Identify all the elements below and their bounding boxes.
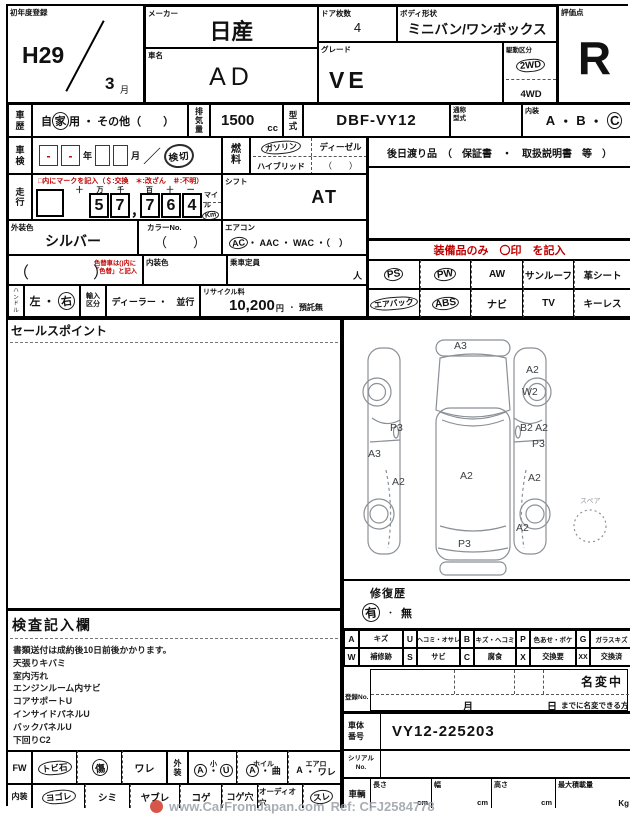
shaken-year-box2: - xyxy=(61,145,80,166)
watermark: www.CarFromJapan.com Ref: CFJ2584778 xyxy=(150,799,435,814)
serial-row: シリアルNo. xyxy=(342,750,630,778)
equip-tv: TV xyxy=(542,298,555,309)
ext-wheel-a: A xyxy=(245,763,259,777)
inspection-notes-title: 検査記入欄 xyxy=(12,615,92,635)
maker-value: 日産 xyxy=(209,14,253,46)
repaint-note-2: 「色替」と記入 xyxy=(93,268,137,276)
legend-w-desc: 補修跡 xyxy=(360,649,402,665)
note-line-4: エンジンルーム内サビ xyxy=(13,682,171,695)
equip-navi-cell: ナビ xyxy=(471,289,523,318)
cabin-dirt-cell: ヨゴレ xyxy=(32,784,85,808)
fw-crack-cell: ワレ xyxy=(122,750,167,784)
cabin-stain-cell: シミ xyxy=(85,784,130,808)
int-color-label: 内装色 xyxy=(146,257,169,268)
note-line-1: 書類送付は成約後10日前後かかります。 xyxy=(13,644,171,657)
shaken-expired-stamp: 検切 xyxy=(163,142,196,169)
equip-sunroof-cell: サンルーフ xyxy=(523,260,574,289)
equip-ps: PS xyxy=(384,267,405,282)
shaken-month-unit: 月 xyxy=(131,149,140,162)
reg-divider-2 xyxy=(514,670,515,694)
legend-p-key: P xyxy=(517,631,529,647)
fuel-options-cell: ガソリン ディーゼル ハイブリッド （ ） xyxy=(250,137,368,174)
damage-label-rf-fender: A2 xyxy=(526,364,539,376)
displacement-value: 1500 xyxy=(221,112,254,129)
ext-wheel-cell: ホイル A・曲 xyxy=(237,750,288,784)
ext-small-cell: 小 A・U xyxy=(188,750,237,784)
damage-label-left-rocker: A3 xyxy=(368,448,381,460)
cabin-label-cell: 内装 xyxy=(8,784,32,808)
legend-p-desc: 色あせ・ボケ xyxy=(531,631,575,647)
repair-history-sep: ・ xyxy=(386,606,395,619)
registration-note: までに名変できる方 xyxy=(561,700,628,711)
score-value: R xyxy=(578,31,611,85)
registration-pending: 名変中 xyxy=(581,673,623,690)
serial-label-border xyxy=(380,751,381,778)
equip-airbag-cell: エアバック xyxy=(368,289,420,318)
dim-height-label: 高さ xyxy=(494,780,508,790)
fuel-other-option: （ ） xyxy=(323,160,357,172)
note-line-7: バックパネルU xyxy=(13,721,171,734)
equip-pw: PW xyxy=(434,267,458,283)
damage-label-left-door: P3 xyxy=(390,422,403,434)
repair-history-no: 無 xyxy=(401,605,412,621)
grade-label: グレード xyxy=(321,44,351,55)
dim-width-unit: cm xyxy=(477,798,488,807)
interior-grade-cell: 内装 A ・ B ・ C xyxy=(522,104,630,137)
capacity-label: 乗車定員 xyxy=(230,257,260,268)
ext-small-dot: ・ xyxy=(209,764,218,777)
displacement-value-cell: 1500 cc xyxy=(210,104,283,137)
registration-label: 登録No. xyxy=(345,691,368,701)
auction-sheet: 初年度登録 H29 3 月 メーカー 日産 車名 AD ドア枚数 4 ボディ形状… xyxy=(6,4,628,806)
legend-xx-desc: 交換済 xyxy=(591,649,630,665)
displacement-label: 排気量 xyxy=(195,107,204,134)
import-label: 輸入区分 xyxy=(86,293,101,309)
cabin-label: 内装 xyxy=(12,791,28,802)
drive-type-cell: 駆動区分 2WD 4WD xyxy=(503,42,557,104)
equipment-note-cell: 装備品のみ 〇印 を記入 xyxy=(368,239,630,260)
chassis-label-border xyxy=(380,714,381,750)
later-goods-cell: 後日渡り品 （ 保証書 ・ 取扱説明書 等 ） xyxy=(368,137,630,167)
ext-small-a: A xyxy=(194,763,208,777)
dim-width-label: 幅 xyxy=(434,780,441,790)
doors-value: 4 xyxy=(354,20,361,35)
body-shape-value: ミニバン/ワンボックス xyxy=(407,18,546,38)
registration-box: 登録No. 名変中 月 日 までに名変できる方 xyxy=(342,665,630,712)
damage-label-right-door-p3: P3 xyxy=(532,438,545,450)
model-code-label-cell: 型式 xyxy=(283,104,303,137)
legend-s-desc: サビ xyxy=(418,649,459,665)
equip-leather-cell: 革シート xyxy=(574,260,630,289)
shift-value: AT xyxy=(311,187,338,208)
car-diagram xyxy=(344,320,630,580)
ext-aero-cell: エアロ A・ワレ xyxy=(288,750,342,784)
drive-2wd-option: 2WD xyxy=(516,58,546,73)
interior-grade-a: A xyxy=(546,113,555,128)
recycle-yen: 円 xyxy=(276,303,284,314)
legend-b-key: B xyxy=(461,631,473,647)
history-label: 車歴 xyxy=(15,110,25,131)
capacity-cell: 乗車定員 人 xyxy=(227,255,368,285)
body-shape-cell: ボディ形状 ミニバン/ワンボックス xyxy=(397,6,557,42)
fw-scratch-cell: 傷 xyxy=(77,750,122,784)
mileage-digit-5: 4 xyxy=(182,193,202,218)
legend-b-desc: キズ・ヘコミ xyxy=(475,631,515,647)
chassis-label: 車体番号 xyxy=(348,720,368,742)
history-circled: 家 xyxy=(51,111,70,131)
first-registration-cell: 初年度登録 H29 3 月 xyxy=(8,6,145,104)
note-line-2: 天張りキバミ xyxy=(13,657,171,670)
inspection-notes-box: 検査記入欄 書類送付は成約後10日前後かかります。 天張りキバミ 室内汚れ エン… xyxy=(8,609,342,750)
car-name-value: AD xyxy=(209,63,254,92)
interior-grade-b: B xyxy=(576,113,585,128)
drive-divider xyxy=(506,79,556,80)
chassis-value: VY12-225203 xyxy=(392,723,495,740)
fuel-label: 燃料 xyxy=(231,145,242,166)
mileage-digit-4: 6 xyxy=(161,193,181,218)
mileage-digit-2: 7 xyxy=(110,193,130,218)
mileage-unit-divider xyxy=(203,202,221,203)
reg-divider-1 xyxy=(454,670,455,694)
repair-history-label: 修復歴 xyxy=(370,585,406,601)
ext-aero-a: A xyxy=(296,765,303,778)
import-options: ディーラー ・ 並行 xyxy=(112,295,195,308)
equip-ps-cell: PS xyxy=(368,260,420,289)
maker-cell: メーカー 日産 xyxy=(145,6,318,48)
equip-leather: 革シート xyxy=(583,268,621,282)
equipment-note: 装備品のみ 〇印 を記入 xyxy=(434,242,566,258)
mileage-digit-1: 5 xyxy=(89,193,109,218)
first-registration-month: 3 xyxy=(105,74,114,94)
color-no-cell: カラーNo. （ ） xyxy=(138,220,222,255)
legend-g-desc: ガラスキズ xyxy=(591,631,630,647)
shaken-year-unit: 年 xyxy=(83,149,92,162)
recycle-status: 預託無 xyxy=(299,302,323,313)
shaken-label: 車検 xyxy=(15,145,25,166)
shift-cell: シフト AT xyxy=(222,174,368,220)
ext-aero-dot: ・ xyxy=(306,765,315,778)
handle-label-cell: ハンドル xyxy=(8,285,24,318)
drive-type-label: 駆動区分 xyxy=(506,44,532,54)
shaken-slash: ／ xyxy=(143,143,161,169)
drive-4wd-option: 4WD xyxy=(520,89,541,100)
dim-payload-label: 最大積載量 xyxy=(558,780,593,790)
damage-legend: A キズ U ヘコミ・オサレ B キズ・ヘコミ P 色あせ・ボケ G ガラスキズ… xyxy=(342,629,630,665)
handle-right-selected: 右 xyxy=(56,291,75,311)
legend-g-key: G xyxy=(577,631,589,647)
auction-sheet-page: { "header": { "first_reg": {"label":"初年度… xyxy=(0,0,640,819)
legend-x-desc: 交換要 xyxy=(531,649,575,665)
note-line-3: 室内汚れ xyxy=(13,670,171,683)
legend-xx-key: XX xyxy=(577,649,589,665)
inspection-notes-divider xyxy=(10,638,338,639)
equip-aw-cell: AW xyxy=(471,260,523,289)
equip-sunroof: サンルーフ xyxy=(525,268,572,282)
registration-month-unit: 月 xyxy=(463,698,473,712)
note-line-8: 下回りC2 xyxy=(13,734,171,747)
interior-grade-sep1: ・ xyxy=(559,111,572,130)
fw-label: FW xyxy=(13,763,27,773)
history-value-cell: 自家用 ・ その他（ ） xyxy=(32,104,188,137)
note-line-5: コアサポートU xyxy=(13,695,171,708)
mileage-check-box xyxy=(36,189,64,217)
ext-wheel-dot: ・ xyxy=(261,764,270,777)
shaken-month-box1 xyxy=(95,145,110,166)
sales-point-divider xyxy=(10,342,338,343)
later-goods-text: 後日渡り品 （ 保証書 ・ 取扱説明書 等 ） xyxy=(387,145,612,160)
fw-scratch: 傷 xyxy=(91,758,109,777)
ext-aero-crack: ワレ xyxy=(318,765,336,778)
carfromjapan-logo-icon xyxy=(150,800,163,813)
repair-history-box: 修復歴 有 ・ 無 xyxy=(342,580,630,629)
history-label-cell: 車歴 xyxy=(8,104,32,137)
displacement-label-cell: 排気量 xyxy=(188,104,210,137)
dim-width-cell: 幅 cm xyxy=(432,779,492,808)
recycle-cell: リサイクル料 10,200 円 ・ 預託無 xyxy=(200,285,368,318)
dimensions-label: 車輌 xyxy=(348,788,365,800)
equipment-freewrite-box xyxy=(368,167,630,239)
import-value-cell: ディーラー ・ 並行 xyxy=(106,285,200,318)
equip-keyless: キーレス xyxy=(583,296,621,310)
equip-abs: ABS xyxy=(431,295,460,311)
exterior-section-label: 外装 xyxy=(173,759,182,777)
equip-pw-cell: PW xyxy=(420,260,471,289)
reg-row-divider xyxy=(371,694,629,695)
dim-payload-unit: Kg xyxy=(618,799,629,808)
alias-model-cell: 通称型式 xyxy=(450,104,522,137)
shaken-year-box1: - xyxy=(39,145,58,166)
exterior-section-label-cell: 外装 xyxy=(167,750,188,784)
legend-a-desc: キズ xyxy=(360,631,402,647)
legend-c-desc: 腐食 xyxy=(475,649,515,665)
ext-color-value: シルバー xyxy=(45,231,101,251)
legend-x-key: X xyxy=(517,649,529,665)
displacement-unit: cc xyxy=(267,123,278,134)
serial-label: シリアルNo. xyxy=(346,754,376,772)
shaken-label-cell: 車検 xyxy=(8,137,32,174)
color-no-value: （ ） xyxy=(154,232,206,251)
repaint-cell: （ ） 色替車は()内に 「色替」と記入 xyxy=(8,255,143,285)
equip-tv-cell: TV xyxy=(523,289,574,318)
legend-u-desc: ヘコミ・オサレ xyxy=(418,631,459,647)
damage-label-roof: A2 xyxy=(460,470,473,482)
equip-abs-cell: ABS xyxy=(420,289,471,318)
grade-cell: グレード VE xyxy=(318,42,503,104)
fuel-diesel-option: ディーゼル xyxy=(320,141,362,153)
repaint-note-1: 色替車は()内に xyxy=(93,260,137,268)
sales-point-box: セールスポイント xyxy=(8,318,342,609)
model-code-value-cell: DBF-VY12 xyxy=(303,104,450,137)
import-label-cell: 輸入区分 xyxy=(80,285,106,318)
digit-header-juman: 十 xyxy=(76,185,83,195)
shaken-value-cell: - - 年 月 ／ 検切 xyxy=(32,137,222,174)
handle-left-option: 左 xyxy=(30,293,41,309)
chassis-row: 車体番号 VY12-225203 xyxy=(342,712,630,750)
model-code-value: DBF-VY12 xyxy=(336,112,417,129)
fw-crack: ワレ xyxy=(135,760,155,775)
ext-wheel-bend: 曲 xyxy=(272,764,281,777)
dim-length-label: 長さ xyxy=(373,780,387,790)
doors-cell: ドア枚数 4 xyxy=(318,6,397,42)
damage-diagram-box: A3 A2 W2 P3 B2 A2 P3 A3 A2 A2 A2 A2 P3 ス… xyxy=(342,318,630,580)
car-name-cell: 車名 AD xyxy=(145,48,318,104)
equip-aw: AW xyxy=(489,269,505,280)
cabin-dirt: ヨゴレ xyxy=(41,788,76,805)
legend-c-key: C xyxy=(461,649,473,665)
fuel-gasoline-selected: ガソリン xyxy=(261,139,302,155)
fw-stone-chip: トビ石 xyxy=(37,759,72,776)
first-registration-month-unit: 月 xyxy=(120,83,129,96)
repair-history-yes-selected: 有 xyxy=(361,602,381,623)
damage-label-right-rear: A2 xyxy=(516,522,529,534)
reg-divider-3 xyxy=(543,670,544,694)
legend-s-key: S xyxy=(404,649,416,665)
score-cell: 評価点 R xyxy=(557,6,630,104)
legend-u-key: U xyxy=(404,631,416,647)
damage-label-rf-glass: W2 xyxy=(522,386,538,398)
note-line-6: インサイドパネルU xyxy=(13,708,171,721)
ext-small-u: U xyxy=(219,763,233,777)
handle-sep: ・ xyxy=(44,293,55,309)
equip-keyless-cell: キーレス xyxy=(574,289,630,318)
fuel-label-cell: 燃料 xyxy=(222,137,250,174)
mileage-label-cell: 走行 xyxy=(8,174,32,220)
capacity-unit: 人 xyxy=(353,269,362,282)
first-registration-year: H29 xyxy=(22,42,64,69)
handle-label: ハンドル xyxy=(13,288,20,314)
mileage-digit-3: 7 xyxy=(140,193,160,218)
history-rest: ・ その他（ ） xyxy=(83,113,174,129)
interior-grade-c-selected: C xyxy=(606,111,623,130)
ext-color-cell: 外装色 シルバー xyxy=(8,220,138,255)
legend-w-key: W xyxy=(345,649,358,665)
recycle-sep: ・ xyxy=(288,302,296,313)
handle-value-cell: 左 ・ 右 xyxy=(24,285,80,318)
watermark-ref: Ref: CFJ2584778 xyxy=(331,799,435,814)
equip-navi: ナビ xyxy=(487,296,507,311)
aircon-rest: ・ AAC ・ WAC ・（ ） xyxy=(248,236,348,249)
mileage-unit-km-selected: Km xyxy=(202,210,220,220)
legend-a-key: A xyxy=(345,631,358,647)
recycle-amount: 10,200 xyxy=(229,297,275,314)
cabin-stain: シミ xyxy=(98,790,117,804)
alias-model-label: 通称型式 xyxy=(453,107,469,122)
fuel-hybrid-option: ハイブリッド xyxy=(257,161,305,172)
model-code-label: 型式 xyxy=(289,110,298,131)
aircon-cell: エアコン AC・ AAC ・ WAC ・（ ） xyxy=(222,220,368,255)
diagonal-slash xyxy=(65,20,104,92)
sales-point-title: セールスポイント xyxy=(11,322,107,339)
damage-label-right-quarter: A2 xyxy=(528,472,541,484)
first-registration-label: 初年度登録 xyxy=(10,7,48,18)
mileage-label: 走行 xyxy=(15,187,25,208)
dim-payload-cell: 最大積載量 Kg xyxy=(556,779,630,808)
fw-label-cell: FW xyxy=(8,750,32,784)
history-post: 用 xyxy=(69,113,80,129)
damage-label-left-quarter: A2 xyxy=(392,476,405,488)
interior-grade-sep2: ・ xyxy=(590,111,603,130)
dim-height-cell: 高さ cm xyxy=(492,779,556,808)
int-color-cell: 内装色 xyxy=(143,255,227,285)
registration-day-unit: 日 xyxy=(547,698,557,712)
watermark-site: www.CarFromJapan.com xyxy=(169,799,325,814)
damage-label-rear: P3 xyxy=(458,538,471,550)
shaken-month-box2 xyxy=(113,145,128,166)
registration-inner-box: 名変中 月 日 までに名変できる方 xyxy=(370,669,628,711)
damage-label-front-bumper: A3 xyxy=(454,340,467,352)
grade-value: VE xyxy=(329,67,368,94)
damage-label-right-door-b2a2: B2 A2 xyxy=(520,422,548,434)
mileage-cell: □内にマークを記入（＄:交換 ＊:改ざん ＃:不明） 十万千 5 7 ， 百十一… xyxy=(32,174,222,220)
dim-height-unit: cm xyxy=(541,798,552,807)
equip-airbag: エアバック xyxy=(370,294,419,311)
history-pre: 自 xyxy=(41,113,52,129)
spare-tire-label: スペア xyxy=(580,496,601,506)
fw-stone-chip-cell: トビ石 xyxy=(32,750,77,784)
aircon-ac-selected: AC xyxy=(228,235,248,249)
